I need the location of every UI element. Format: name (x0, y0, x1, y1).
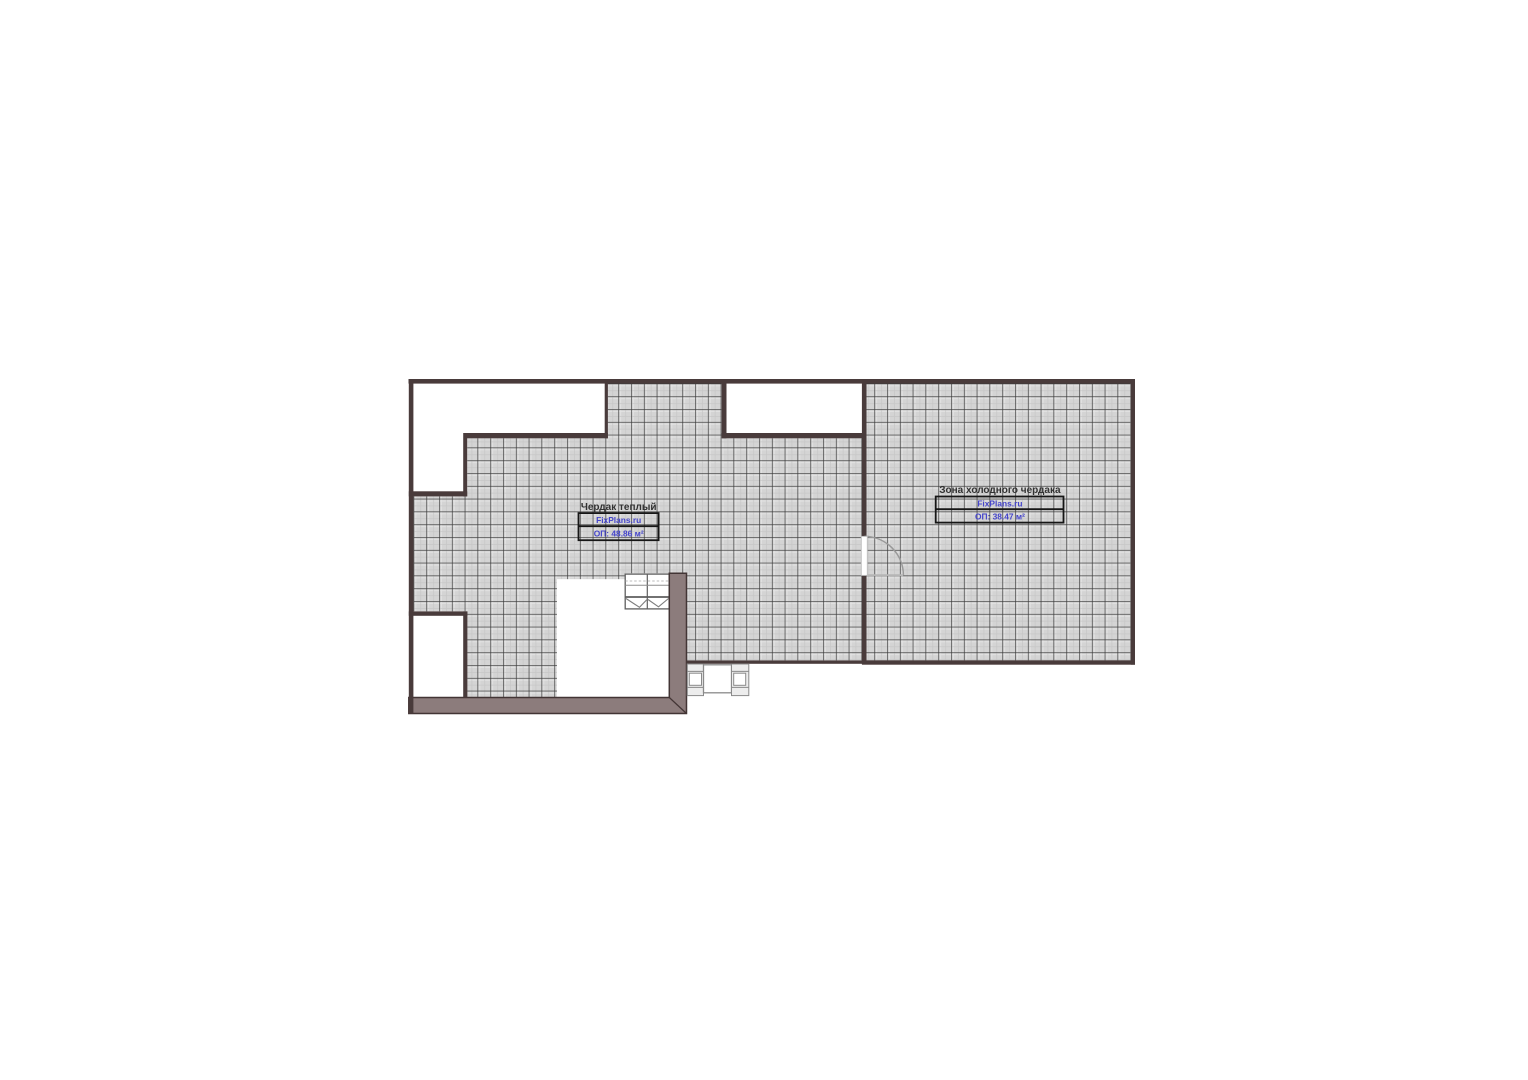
svg-text:ОП: 48.86 м²: ОП: 48.86 м² (594, 529, 644, 539)
svg-text:Чердак теплый: Чердак теплый (581, 502, 657, 513)
svg-text:FixPlans.ru: FixPlans.ru (596, 515, 641, 525)
svg-text:Зона холодного чердака: Зона холодного чердака (939, 485, 1061, 496)
svg-text:ОП: 38.47 м²: ОП: 38.47 м² (975, 512, 1025, 522)
svg-text:FixPlans.ru: FixPlans.ru (977, 498, 1022, 508)
